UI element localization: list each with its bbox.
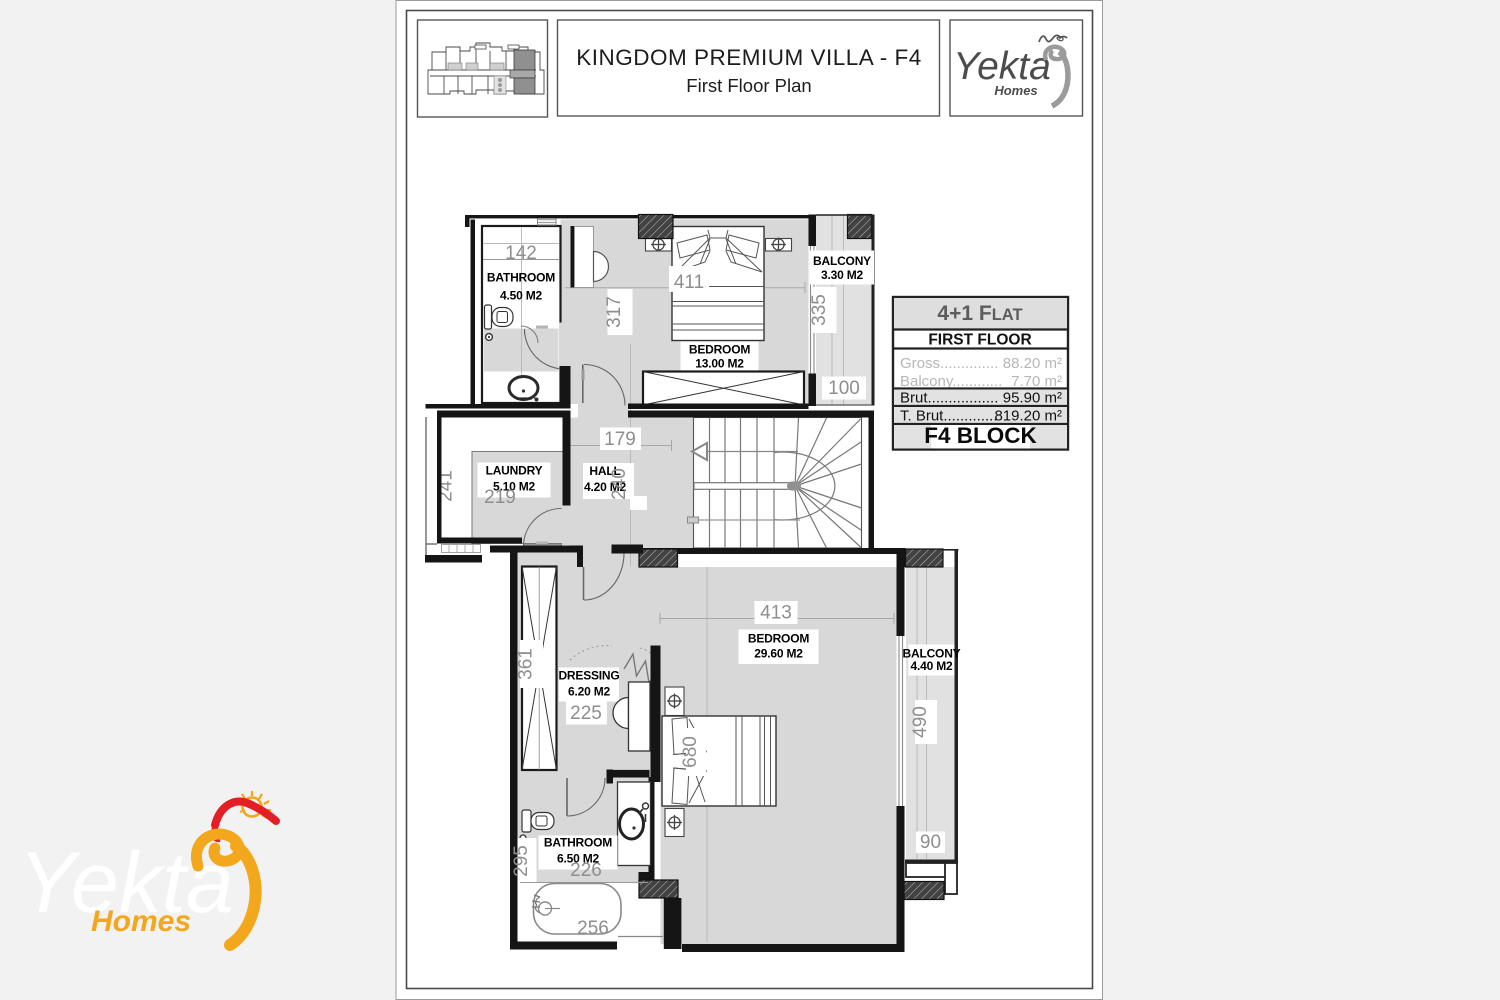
- svg-text:95.90 m²: 95.90 m²: [1003, 390, 1062, 407]
- svg-text:142: 142: [505, 243, 537, 264]
- svg-text:226: 226: [570, 860, 602, 881]
- svg-text:490: 490: [910, 706, 931, 738]
- svg-text:179: 179: [604, 429, 636, 450]
- svg-text:FIRST FLOOR: FIRST FLOOR: [928, 332, 1031, 349]
- svg-text:3.30 M2: 3.30 M2: [821, 268, 863, 282]
- svg-text:295: 295: [511, 845, 532, 877]
- svg-text:100: 100: [828, 378, 860, 399]
- svg-text:Homes: Homes: [994, 83, 1037, 98]
- svg-text:819.20 m²: 819.20 m²: [994, 408, 1062, 425]
- svg-text:256: 256: [577, 918, 609, 939]
- svg-text:13.00 M2: 13.00 M2: [695, 357, 744, 371]
- svg-text:361: 361: [516, 648, 537, 680]
- svg-text:335: 335: [809, 294, 830, 326]
- svg-text:88.20 m²: 88.20 m²: [1003, 355, 1062, 372]
- svg-text:Gross..............: Gross..............: [900, 355, 998, 372]
- svg-text:90: 90: [920, 832, 941, 853]
- svg-text:219: 219: [484, 487, 516, 508]
- svg-text:240: 240: [609, 468, 630, 500]
- svg-text:KINGDOM PREMIUM VILLA - F4: KINGDOM PREMIUM VILLA - F4: [576, 45, 922, 70]
- svg-text:T. Brut.............: T. Brut.............: [900, 408, 998, 425]
- svg-text:First Floor Plan: First Floor Plan: [686, 75, 811, 96]
- svg-text:4+1 FLAT: 4+1 FLAT: [937, 302, 1022, 325]
- svg-text:680: 680: [680, 736, 701, 768]
- svg-text:6.20 M2: 6.20 M2: [568, 685, 610, 699]
- svg-text:225: 225: [570, 703, 602, 724]
- svg-text:BATHROOM: BATHROOM: [544, 836, 612, 850]
- svg-text:4.40 M2: 4.40 M2: [911, 659, 953, 673]
- svg-text:LAUNDRY: LAUNDRY: [486, 464, 543, 478]
- svg-text:317: 317: [604, 296, 625, 328]
- svg-text:Brut.................: Brut.................: [900, 390, 998, 407]
- svg-text:29.60 M2: 29.60 M2: [754, 647, 803, 661]
- svg-text:413: 413: [760, 603, 792, 624]
- svg-text:Yekta: Yekta: [953, 45, 1051, 88]
- svg-text:BALCONY: BALCONY: [813, 254, 871, 268]
- svg-text:BATHROOM: BATHROOM: [487, 271, 555, 285]
- svg-text:411: 411: [674, 272, 704, 293]
- svg-text:BEDROOM: BEDROOM: [748, 632, 809, 646]
- svg-text:4.50 M2: 4.50 M2: [500, 289, 542, 303]
- svg-text:F4 BLOCK: F4 BLOCK: [924, 423, 1037, 448]
- svg-text:BEDROOM: BEDROOM: [689, 343, 750, 357]
- svg-text:Homes: Homes: [91, 905, 191, 938]
- svg-text:DRESSING: DRESSING: [558, 669, 619, 683]
